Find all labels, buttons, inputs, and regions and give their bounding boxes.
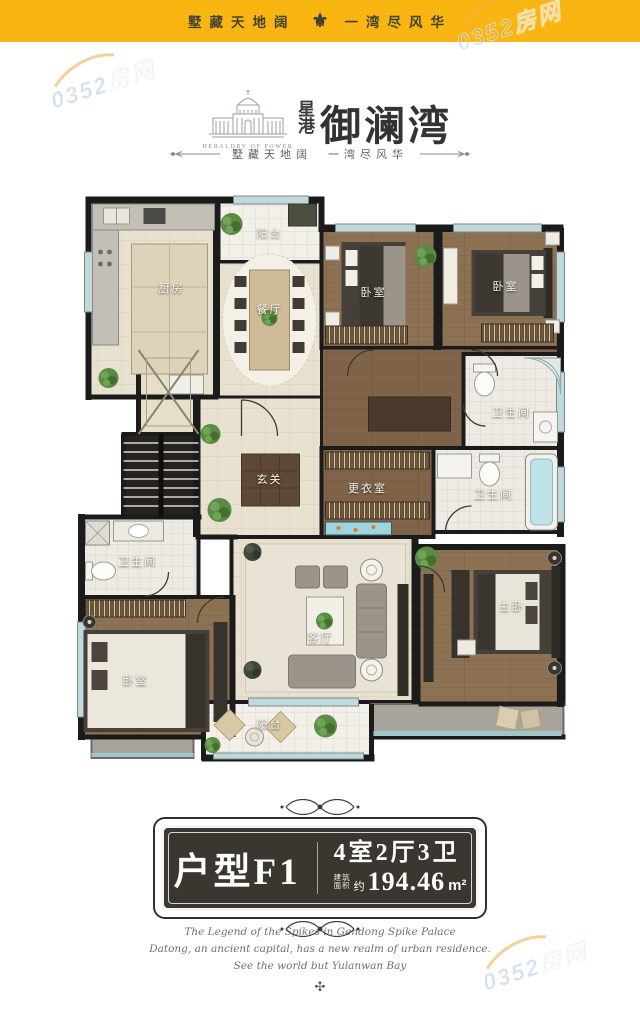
room-label-bath-3: 卫生间 — [118, 554, 157, 568]
room-label-balcony-top: 阳台 — [257, 226, 283, 240]
poster-page: 墅藏天地阔 ⚜ 一湾尽风华 0352房网 0352房网 0352房网 — [0, 0, 640, 1031]
seal-char-bottom: 港 — [298, 118, 315, 135]
area-unit: m² — [448, 878, 466, 895]
plaque-outer-frame: 户型F1 4室2厅3卫 建筑 面积 约 194.46 m² — [153, 817, 487, 919]
room-label-bedroom-3: 卧室 — [123, 673, 149, 687]
area-label-line2: 面积 — [334, 882, 351, 891]
watermark-swoosh-icon — [47, 47, 120, 90]
floor-plan-drawing: 阳台 厨房 餐厅 卧室 卧室 卫生间 玄关 更衣室 卫生间 卫生间 卧室 客厅 … — [72, 192, 578, 764]
unit-type-name: 户型F1 — [174, 841, 301, 895]
logo-tagline: 墅藏天地阔 一湾尽风华 — [232, 146, 408, 162]
unit-type-badge: 户型F1 4室2厅3卫 建筑 面积 约 194.46 m² — [153, 799, 487, 937]
logo-tagline-row: 墅藏天地阔 一湾尽风华 — [0, 146, 640, 162]
room-label-dressing: 更衣室 — [348, 481, 387, 495]
plaque: 户型F1 4室2厅3卫 建筑 面积 约 194.46 m² — [161, 825, 479, 911]
logo-section: HERALDRY OF POWER 星 港 御澜湾 墅藏天地阔 一湾尽风华 — [0, 88, 640, 170]
area-label: 建筑 面积 — [334, 874, 351, 891]
plaque-divider — [317, 842, 318, 894]
footer-line-3: See the world but Yulanwan Bay — [0, 958, 640, 975]
fleur-de-lis-icon: ⚜ — [311, 10, 328, 33]
palace-building-icon — [206, 88, 290, 138]
top-banner: 墅藏天地阔 ⚜ 一湾尽风华 — [0, 0, 640, 42]
room-label-bath-1: 卫生间 — [492, 405, 531, 419]
tagline-ornament-right-icon — [420, 150, 472, 158]
logo-seal: 星 港 — [298, 101, 315, 136]
room-label-bath-2: 卫生间 — [474, 487, 513, 501]
tagline-ornament-left-icon — [168, 150, 220, 158]
brand-name: 御澜湾 — [320, 92, 452, 152]
banner-right-text: 一湾尽风华 — [345, 11, 453, 31]
flourish-ornament-bottom-icon — [270, 921, 370, 937]
room-label-living: 客厅 — [308, 630, 334, 644]
unit-spec: 4室2厅3卫 — [334, 840, 460, 866]
room-label-kitchen: 厨房 — [159, 282, 185, 295]
footer-line-2: Datong, an ancient capital, has a new re… — [0, 941, 640, 958]
room-label-balcony-bottom: 阳台 — [257, 717, 283, 731]
room-label-master: 主卧 — [499, 600, 525, 613]
seal-char-top: 星 — [298, 101, 315, 118]
unit-spec-column: 4室2厅3卫 建筑 面积 约 194.46 m² — [334, 840, 467, 897]
room-label-dining: 餐厅 — [257, 302, 283, 316]
floor-plan: 阳台 厨房 餐厅 卧室 卧室 卫生间 玄关 更衣室 卫生间 卫生间 卧室 客厅 … — [72, 192, 578, 764]
logo-building: HERALDRY OF POWER — [202, 88, 294, 150]
room-label-bedroom-2: 卧室 — [493, 279, 519, 293]
footer-ornament-icon: ✣ — [0, 978, 640, 999]
room-label-bedroom-1: 卧室 — [361, 285, 387, 299]
unit-area-row: 建筑 面积 约 194.46 m² — [334, 868, 467, 897]
area-value: 194.46 — [368, 868, 446, 897]
area-approx: 约 — [354, 881, 365, 893]
flourish-ornament-top-icon — [270, 799, 370, 815]
room-label-foyer: 玄关 — [257, 472, 283, 486]
banner-left-text: 墅藏天地阔 — [188, 11, 296, 31]
